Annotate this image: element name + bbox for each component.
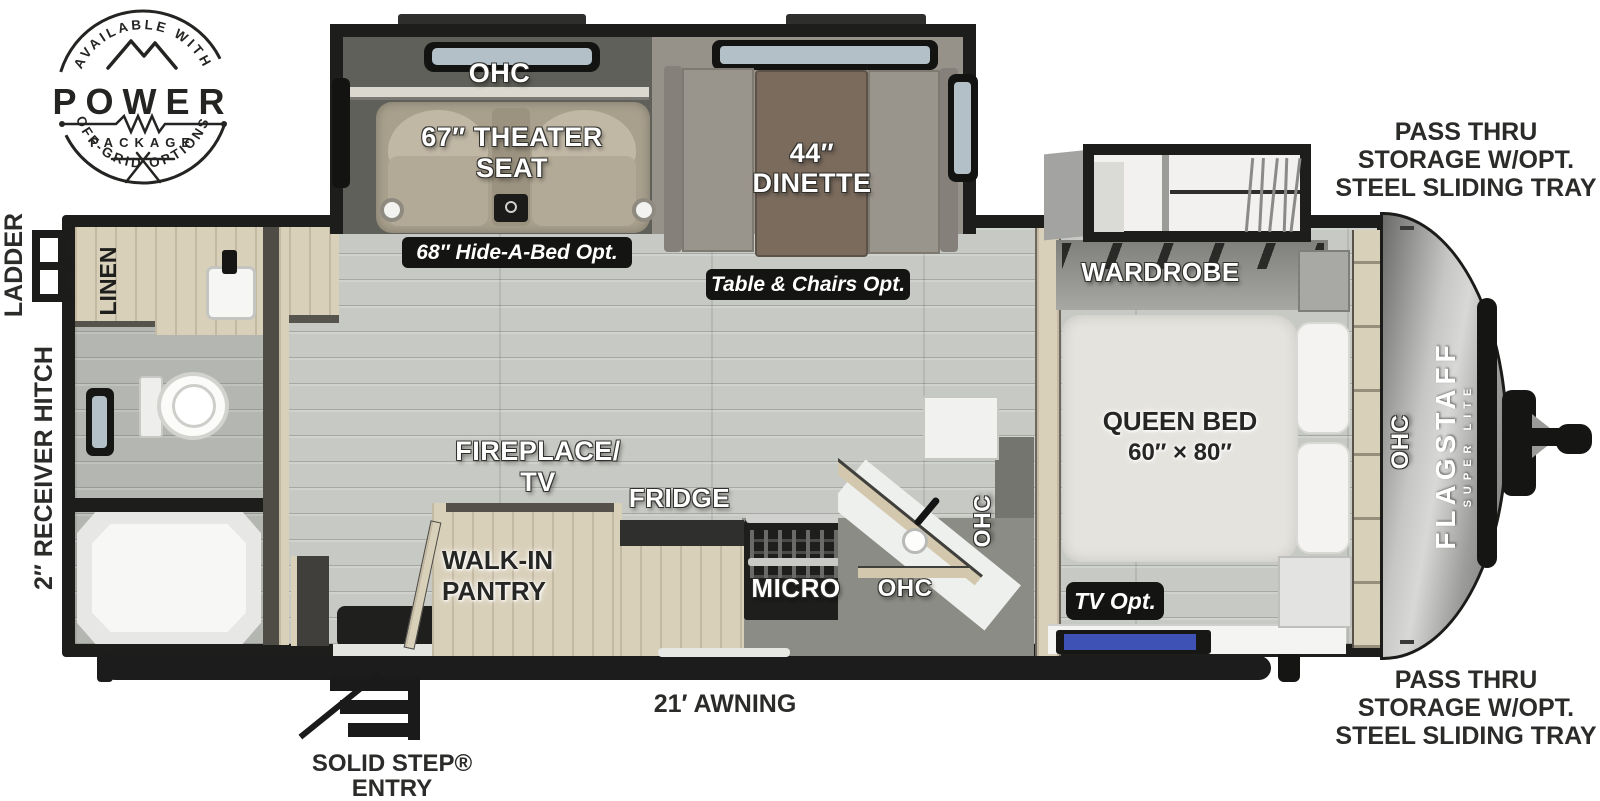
fireplace-tv-label: FIREPLACE/ TV	[443, 436, 633, 498]
ohc-label-kitchen-side: OHC	[970, 485, 994, 557]
toilet-seat	[172, 384, 216, 428]
table-chairs-badge: Table & Chairs Opt.	[706, 269, 910, 300]
tv-opt-badge: TV Opt.	[1066, 582, 1164, 620]
fireplace-unit	[291, 556, 329, 646]
bedside-cabinet	[1298, 250, 1350, 312]
range-grates	[750, 530, 838, 578]
entry-steps-icon	[295, 660, 435, 746]
cupholder-right	[632, 198, 656, 222]
wardrobe-label: WARDROBE	[1078, 258, 1243, 287]
micro-label: MICRO	[742, 574, 850, 603]
logo-title: POWER	[52, 81, 233, 122]
ohc-label-top: OHC	[452, 58, 547, 88]
dinette-window-side-glass	[954, 82, 971, 174]
corner-counter	[838, 440, 1034, 657]
pass-thru-storage-label-top: PASS THRU STORAGE W/OPT. STEEL SLIDING T…	[1330, 118, 1600, 202]
pass-thru-storage-label-bottom: PASS THRU STORAGE W/OPT. STEEL SLIDING T…	[1330, 666, 1600, 750]
pantry-top-trim	[446, 503, 614, 512]
bed-pillow-top	[1296, 322, 1350, 434]
brand-tagline: SUPER LITE	[1462, 285, 1474, 605]
wardrobe-divider	[1162, 155, 1169, 231]
slide-side-window	[332, 78, 350, 188]
cap-bolt-bottom	[1400, 640, 1414, 644]
ohc-label-kitchen: OHC	[866, 576, 944, 603]
awning-endcap	[97, 654, 113, 682]
range-mid-rail	[748, 558, 840, 566]
range-top-rail	[746, 514, 842, 523]
shower-pan-inner	[92, 524, 246, 632]
solid-step-entry-label: SOLID STEP® ENTRY	[302, 751, 482, 801]
logo-arc-top: AVAILABLE WITH	[71, 17, 216, 71]
hide-a-bed-badge: 68″ Hide-A-Bed Opt.	[402, 237, 632, 268]
ohc-shelf	[343, 87, 649, 100]
dinette-window-top-glass	[720, 46, 930, 64]
awning-label: 21′ AWNING	[645, 690, 805, 719]
bathroom-wall-trim	[279, 227, 289, 645]
flagstaff-logo: FLAGSTAFF SUPER LITE	[1430, 285, 1486, 605]
theater-seat-label: 67″ THEATER SEAT	[412, 122, 612, 184]
bed-pillow-bottom	[1296, 442, 1350, 554]
bathroom-wall	[263, 227, 279, 645]
shower-header	[75, 498, 263, 512]
kitchen-sink	[902, 528, 928, 554]
step-3	[348, 723, 418, 737]
bathroom-window-glass	[92, 396, 107, 448]
floorplan-diagram: AVAILABLE WITH POWER PACKAGE OFF-GRID OP…	[0, 0, 1600, 801]
mountain-icon	[108, 41, 176, 68]
fridge-label: FRIDGE	[612, 484, 747, 513]
tongue-jack	[1502, 390, 1536, 496]
foot-bench	[1278, 556, 1352, 628]
ladder-label: LADDER	[0, 205, 28, 325]
awning-pull-strip	[658, 648, 790, 657]
power-package-logo: AVAILABLE WITH POWER PACKAGE OFF-GRID OP…	[48, 2, 238, 194]
queen-bed-label: QUEEN BED 60″ × 80″	[1085, 406, 1275, 468]
cupholder-left	[380, 198, 404, 222]
awning-roller	[103, 656, 1271, 680]
dinette-armrest-left	[664, 66, 682, 252]
bedroom-tv-screen	[1064, 634, 1196, 650]
cap-bolt-top	[1400, 226, 1414, 230]
entry-door-mat	[337, 606, 441, 648]
front-stabilizer	[1278, 654, 1300, 682]
hall-cabinet	[289, 227, 339, 323]
dinette-label: 44″ DINETTE	[732, 138, 892, 198]
vanity-faucet	[222, 250, 237, 274]
walk-in-pantry-label: WALK-IN PANTRY	[442, 545, 592, 607]
coupler-handle	[1556, 424, 1592, 454]
receiver-hitch-label: 2″ RECEIVER HITCH	[30, 333, 58, 603]
brand-name: FLAGSTAFF	[1430, 285, 1462, 605]
step-1	[330, 677, 420, 691]
linen-label: LINEN	[96, 237, 120, 325]
step-2	[340, 700, 420, 714]
ohc-label-front: OHC	[1388, 400, 1414, 484]
wardrobe-left-shade	[1094, 162, 1124, 232]
fridge-top	[620, 520, 744, 546]
vanity-sink	[206, 266, 256, 320]
wardrobe-rod	[1170, 190, 1300, 194]
theater-console-dot	[505, 201, 517, 213]
